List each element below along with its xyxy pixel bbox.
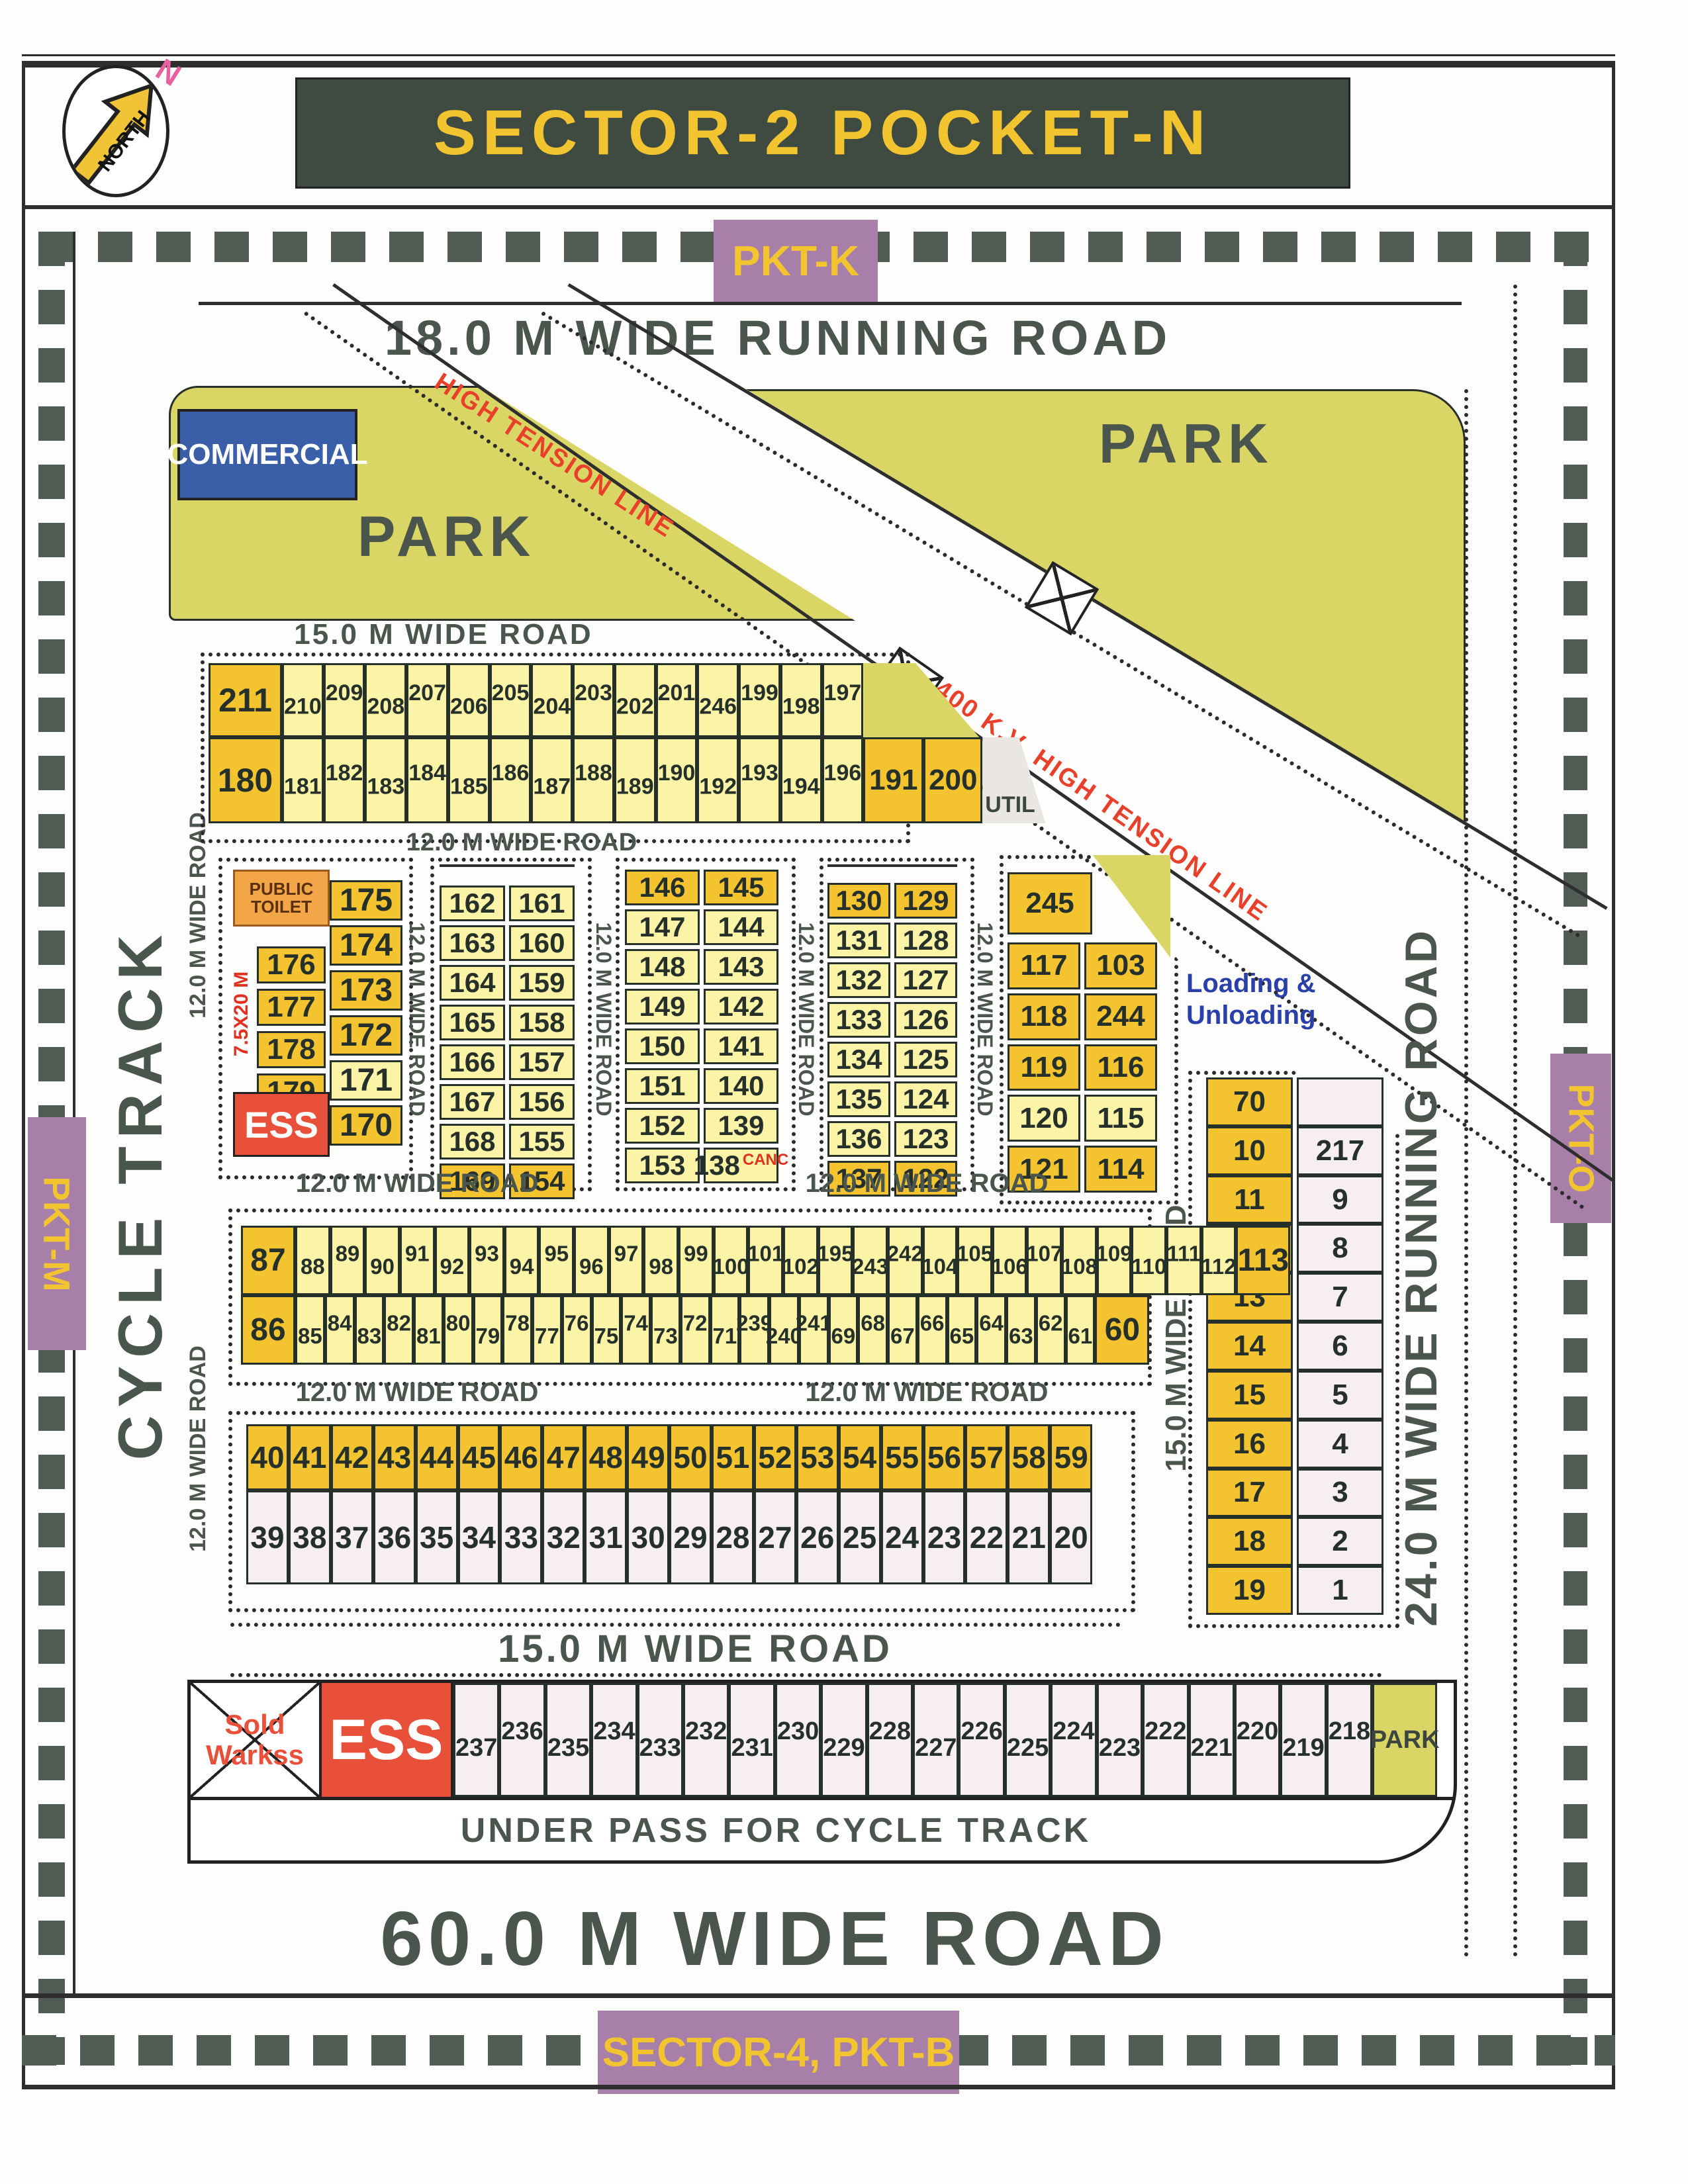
- plot-138: 138CANC: [704, 1148, 778, 1183]
- plot-92: 92: [435, 1226, 470, 1295]
- plot-103: 103: [1084, 942, 1157, 989]
- plot-82: 82: [384, 1295, 414, 1365]
- block3-cells: 1461451471441481431491421501411511401521…: [625, 870, 778, 1163]
- plot-48: 48: [585, 1424, 627, 1490]
- road15-right-label: 15.0 M WIDE ROAD: [1160, 1093, 1193, 1583]
- plot-69: 69: [829, 1295, 859, 1365]
- plot-29: 29: [669, 1490, 712, 1584]
- plot-56: 56: [923, 1424, 966, 1490]
- plot-88: 88: [295, 1226, 330, 1295]
- plot-70: 70: [1206, 1077, 1293, 1126]
- plot-130: 130: [827, 883, 890, 919]
- plot-222: 222: [1143, 1683, 1188, 1797]
- plot-209: 209: [324, 663, 365, 737]
- road18-label: 18.0 M WIDE RUNNING ROAD: [331, 310, 1225, 366]
- plot-108: 108: [1062, 1226, 1097, 1295]
- plot-111: 111: [1166, 1226, 1201, 1295]
- cycle-track-label: CYCLE TRACK: [105, 775, 176, 1612]
- plot-row-130-129: 130129: [827, 883, 957, 919]
- plot-row-152-139: 152139: [625, 1108, 778, 1144]
- plot-51: 51: [712, 1424, 754, 1490]
- plot-164: 164: [440, 965, 505, 1001]
- plot-117: 117: [1008, 942, 1080, 989]
- plot-19: 19: [1206, 1566, 1293, 1615]
- plot-245: 245: [1008, 872, 1092, 934]
- plot-8: 8: [1297, 1224, 1383, 1273]
- plot-90: 90: [365, 1226, 400, 1295]
- plot-row-146-145: 146145: [625, 870, 778, 905]
- bottom-strip: Sold Warkss ESS 237236235234233232231230…: [187, 1680, 1457, 1864]
- plot-73: 73: [651, 1295, 680, 1365]
- plot-50: 50: [669, 1424, 712, 1490]
- block4-cells: 1301291311281321271331261341251351241361…: [827, 883, 957, 1167]
- plot-146: 146: [625, 870, 700, 905]
- plot-240: 240: [769, 1295, 799, 1365]
- plot-row-134-125: 134125: [827, 1042, 957, 1077]
- plot-226: 226: [959, 1683, 1004, 1797]
- plot-211: 211: [209, 663, 282, 737]
- plot-188: 188: [573, 737, 614, 823]
- plot-45: 45: [458, 1424, 500, 1490]
- plot-224: 224: [1051, 1683, 1096, 1797]
- plot-187: 187: [531, 737, 573, 823]
- plot-129: 129: [894, 883, 957, 919]
- plot-row-168-155: 168155: [440, 1124, 575, 1160]
- plot-229: 229: [821, 1683, 867, 1797]
- plot-237: 237: [453, 1683, 499, 1797]
- plot-141: 141: [704, 1028, 778, 1064]
- block2-cells: 1621611631601641591651581661571671561681…: [440, 886, 575, 1166]
- page-title: SECTOR-2 POCKET-N: [434, 97, 1212, 169]
- road12-low-label-2: 12.0 M WIDE ROAD: [781, 1378, 1072, 1408]
- plot-233: 233: [637, 1683, 683, 1797]
- plot-98: 98: [643, 1226, 679, 1295]
- north-compass: NORTH: [62, 65, 169, 197]
- plot-85: 85: [295, 1295, 325, 1365]
- plot-205: 205: [490, 663, 532, 737]
- plot-123: 123: [894, 1121, 957, 1157]
- plot-143: 143: [704, 949, 778, 985]
- plot-34: 34: [458, 1490, 500, 1584]
- plot-54: 54: [839, 1424, 881, 1490]
- plot-168: 168: [440, 1124, 505, 1160]
- plot-118: 118: [1008, 993, 1080, 1040]
- plot-15: 15: [1206, 1371, 1293, 1420]
- plot-139: 139: [704, 1108, 778, 1144]
- plot-row-167-156: 167156: [440, 1084, 575, 1120]
- plot-189: 189: [614, 737, 656, 823]
- plot-5: 5: [1297, 1371, 1383, 1420]
- plot-row-151-140: 151140: [625, 1068, 778, 1104]
- plot-row-153-138: 153138CANC: [625, 1148, 778, 1183]
- road12-mid-label-2: 12.0 M WIDE ROAD: [781, 1169, 1072, 1199]
- label-sector4-pktb: SECTOR-4, PKT-B: [598, 2011, 959, 2094]
- road24-label: 24.0 M WIDE RUNNING ROAD: [1395, 715, 1447, 1840]
- plot-170: 170: [330, 1105, 402, 1146]
- plot-140: 140: [704, 1068, 778, 1104]
- plot-43: 43: [373, 1424, 416, 1490]
- plot-1: 1: [1297, 1566, 1383, 1615]
- plot-58: 58: [1008, 1424, 1050, 1490]
- plot-24: 24: [881, 1490, 923, 1584]
- plot-64: 64: [976, 1295, 1006, 1365]
- plot-89: 89: [330, 1226, 365, 1295]
- plot-91: 91: [400, 1226, 435, 1295]
- plot-165: 165: [440, 1005, 505, 1040]
- plot-131: 131: [827, 923, 890, 958]
- park-right-label: PARK: [1099, 412, 1274, 476]
- plot-231: 231: [729, 1683, 774, 1797]
- long-row-a: 87 8889909192939495969798991001011021952…: [241, 1226, 1136, 1295]
- plot-124: 124: [894, 1081, 957, 1117]
- plot-241: 241: [799, 1295, 829, 1365]
- plot-20: 20: [1050, 1490, 1092, 1584]
- plot-3: 3: [1297, 1469, 1383, 1518]
- plot-59: 59: [1050, 1424, 1092, 1490]
- plot-114: 114: [1084, 1146, 1157, 1193]
- plot-180: 180: [209, 737, 282, 823]
- plot-191: 191: [863, 737, 923, 823]
- plot-167: 167: [440, 1084, 505, 1120]
- road15-bottom-label: 15.0 M WIDE ROAD: [397, 1627, 993, 1671]
- plot-207: 207: [406, 663, 448, 737]
- title-divider-line: [22, 205, 1615, 209]
- plot-136: 136: [827, 1121, 890, 1157]
- block1-right-cells: 175174173172171170: [330, 880, 402, 1145]
- road12-mid-label-1: 12.0 M WIDE ROAD: [265, 1169, 569, 1199]
- plot-10: 10: [1206, 1126, 1293, 1175]
- plot-53: 53: [796, 1424, 839, 1490]
- plot-106: 106: [992, 1226, 1027, 1295]
- plot-row-163-160: 163160: [440, 925, 575, 961]
- plot-row-135-124: 135124: [827, 1081, 957, 1117]
- outer-border-left: [22, 61, 25, 2089]
- plot-206: 206: [448, 663, 490, 737]
- plot-row-150-141: 150141: [625, 1028, 778, 1064]
- plot-133: 133: [827, 1002, 890, 1038]
- park-left-label: PARK: [357, 504, 536, 570]
- block1-left-cells: 176177178179: [257, 946, 326, 1085]
- plot-row-14-6: 146: [1206, 1322, 1383, 1371]
- plot-190: 190: [656, 737, 698, 823]
- plot-183: 183: [365, 737, 406, 823]
- public-toilet-box: PUBLIC TOILET: [233, 870, 330, 927]
- plot-74: 74: [621, 1295, 651, 1365]
- forty-row-top: 4041424344454647484950515253545556575859: [246, 1424, 1092, 1490]
- plot-65: 65: [947, 1295, 977, 1365]
- plot-67: 67: [888, 1295, 917, 1365]
- plot-115: 115: [1084, 1095, 1157, 1142]
- plot-242: 242: [888, 1226, 923, 1295]
- plot-160: 160: [509, 925, 575, 961]
- plot-2: 2: [1297, 1517, 1383, 1566]
- plot-227: 227: [913, 1683, 959, 1797]
- plot-93: 93: [469, 1226, 504, 1295]
- plot-113: 113: [1236, 1226, 1290, 1295]
- sector-plot-map: SECTOR-2 POCKET-N NORTH N PKT-K PKT-M PK…: [0, 0, 1688, 2184]
- plot-row-132-127: 132127: [827, 962, 957, 998]
- plot-28: 28: [712, 1490, 754, 1584]
- plot-row-18-2: 182: [1206, 1517, 1383, 1566]
- plot-6: 6: [1297, 1322, 1383, 1371]
- road12-vertical-2: 12.0 M WIDE ROAD: [591, 875, 616, 1163]
- plot-39: 39: [246, 1490, 289, 1584]
- plot-21: 21: [1008, 1490, 1050, 1584]
- plot-225: 225: [1005, 1683, 1051, 1797]
- plot-120: 120: [1008, 1095, 1080, 1142]
- label-pkt-m: PKT-M: [28, 1117, 86, 1350]
- plot-40: 40: [246, 1424, 289, 1490]
- plot-177: 177: [257, 989, 326, 1026]
- plot-243: 243: [853, 1226, 888, 1295]
- plot-row-133-126: 133126: [827, 1002, 957, 1038]
- plot-105: 105: [957, 1226, 992, 1295]
- plot-35: 35: [416, 1490, 458, 1584]
- plot-32: 32: [542, 1490, 585, 1584]
- plot-36: 36: [373, 1490, 416, 1584]
- plot-47: 47: [542, 1424, 585, 1490]
- block4-header-line: [827, 864, 957, 867]
- plot-81: 81: [414, 1295, 444, 1365]
- plot-192: 192: [697, 737, 739, 823]
- plot-155: 155: [509, 1124, 575, 1160]
- plot-100: 100: [714, 1226, 749, 1295]
- plot-row-19-1: 191: [1206, 1566, 1383, 1615]
- plot-99: 99: [679, 1226, 714, 1295]
- plot-66: 66: [917, 1295, 947, 1365]
- outer-border-top-thin: [22, 54, 1615, 56]
- plot-193: 193: [739, 737, 780, 823]
- park-cell-bottom: PARK: [1372, 1683, 1437, 1797]
- plot-dimension-label: 7.5X20 M: [230, 942, 253, 1085]
- plot-row-147-144: 147144: [625, 909, 778, 945]
- plot-198: 198: [780, 663, 822, 737]
- label-pkt-o: PKT-O: [1550, 1054, 1611, 1223]
- commercial-label: COMMERCIAL: [167, 438, 367, 471]
- plot-83: 83: [355, 1295, 385, 1365]
- plot-77: 77: [532, 1295, 562, 1365]
- label-pkt-k: PKT-K: [714, 220, 878, 302]
- outer-border-top: [22, 61, 1615, 68]
- plot-row-16-4: 164: [1206, 1420, 1383, 1469]
- plot-110: 110: [1131, 1226, 1166, 1295]
- plot-142: 142: [704, 989, 778, 1024]
- plot-38: 38: [289, 1490, 331, 1584]
- plot-61: 61: [1066, 1295, 1096, 1365]
- plot-186: 186: [490, 737, 532, 823]
- plot-219: 219: [1280, 1683, 1326, 1797]
- plot-empty: [1297, 1077, 1383, 1126]
- plot-235: 235: [545, 1683, 591, 1797]
- plot-16: 16: [1206, 1420, 1293, 1469]
- road12-vertical-4: 12.0 M WIDE ROAD: [972, 875, 997, 1163]
- plot-row-11-9: 119: [1206, 1175, 1383, 1224]
- plot-22: 22: [965, 1490, 1008, 1584]
- plot-185: 185: [448, 737, 490, 823]
- plot-57: 57: [965, 1424, 1008, 1490]
- ess-box-bottom: ESS: [322, 1683, 453, 1797]
- plot-row-149-142: 149142: [625, 989, 778, 1024]
- plot-147: 147: [625, 909, 700, 945]
- plot-128: 128: [894, 923, 957, 958]
- plot-71: 71: [710, 1295, 740, 1365]
- plot-163: 163: [440, 925, 505, 961]
- plot-135: 135: [827, 1081, 890, 1117]
- plot-23: 23: [923, 1490, 966, 1584]
- block2-header-line: [440, 864, 575, 867]
- plot-row-15-5: 155: [1206, 1371, 1383, 1420]
- plot-126: 126: [894, 1002, 957, 1038]
- bottom-line-upper: [22, 1993, 1615, 1998]
- plot-236: 236: [499, 1683, 545, 1797]
- plot-46: 46: [500, 1424, 542, 1490]
- plot-176: 176: [257, 946, 326, 983]
- plot-196: 196: [822, 737, 864, 823]
- plot-195: 195: [818, 1226, 853, 1295]
- plot-244: 244: [1084, 993, 1157, 1040]
- plot-109: 109: [1097, 1226, 1132, 1295]
- road12-vertical-1: 12.0 M WIDE ROAD: [404, 875, 429, 1163]
- plot-246: 246: [697, 663, 739, 737]
- plot-162: 162: [440, 886, 505, 921]
- plot-row-10-217: 10217: [1206, 1126, 1383, 1175]
- plot-17: 17: [1206, 1469, 1293, 1518]
- plot-204: 204: [531, 663, 573, 737]
- underpass-strip: UNDER PASS FOR CYCLE TRACK: [191, 1800, 1454, 1860]
- right-block-cells: 7010217119128137146155164173182191: [1206, 1077, 1383, 1615]
- plot-75: 75: [592, 1295, 622, 1365]
- plot-132: 132: [827, 962, 890, 998]
- plot-101: 101: [748, 1226, 783, 1295]
- bottom-line-lower: [22, 2085, 1615, 2089]
- plot-217: 217: [1297, 1126, 1383, 1175]
- plot-134: 134: [827, 1042, 890, 1077]
- plot-151: 151: [625, 1068, 700, 1104]
- plot-181: 181: [282, 737, 324, 823]
- long-row-b: 86 8584838281807978777675747372712392402…: [241, 1295, 1136, 1365]
- plot-63: 63: [1006, 1295, 1036, 1365]
- road15-bottom-dotted-bottom: [230, 1673, 1382, 1677]
- plot-156: 156: [509, 1084, 575, 1120]
- road12-top-label: 12.0 M WIDE ROAD: [389, 829, 654, 857]
- plot-239: 239: [739, 1295, 769, 1365]
- plot-14: 14: [1206, 1322, 1293, 1371]
- plot-row-131-128: 131128: [827, 923, 957, 958]
- plot-230: 230: [775, 1683, 821, 1797]
- plot-41: 41: [289, 1424, 331, 1490]
- plot-60: 60: [1095, 1295, 1149, 1365]
- plot-row-120-115: 120115: [1008, 1095, 1157, 1142]
- plot-197: 197: [822, 663, 864, 737]
- plot-42: 42: [331, 1424, 373, 1490]
- plot-127: 127: [894, 962, 957, 998]
- plot-9: 9: [1297, 1175, 1383, 1224]
- plot-223: 223: [1097, 1683, 1143, 1797]
- plot-row-136-123: 136123: [827, 1121, 957, 1157]
- plot-172: 172: [330, 1015, 402, 1056]
- plot-234: 234: [591, 1683, 637, 1797]
- plot-row-117-103: 117103: [1008, 942, 1157, 989]
- plot-26: 26: [796, 1490, 839, 1584]
- plot-184: 184: [406, 737, 448, 823]
- plot-152: 152: [625, 1108, 700, 1144]
- plot-80: 80: [444, 1295, 473, 1365]
- road24-dotted-left: [1464, 389, 1468, 1958]
- plot-201: 201: [656, 663, 698, 737]
- plot-102: 102: [783, 1226, 818, 1295]
- plot-row-162-161: 162161: [440, 886, 575, 921]
- plot-55: 55: [881, 1424, 923, 1490]
- plot-200: 200: [923, 737, 982, 823]
- plot-208: 208: [365, 663, 406, 737]
- plot-18: 18: [1206, 1517, 1293, 1566]
- plot-203: 203: [573, 663, 614, 737]
- plot-119: 119: [1008, 1044, 1080, 1091]
- top-block-row2: 180 181182183184185186187188189190192193…: [209, 737, 959, 823]
- plot-228: 228: [867, 1683, 913, 1797]
- plot-232: 232: [683, 1683, 729, 1797]
- plot-4: 4: [1297, 1420, 1383, 1469]
- plot-96: 96: [574, 1226, 609, 1295]
- plot-145: 145: [704, 870, 778, 905]
- plot-125: 125: [894, 1042, 957, 1077]
- sold-warkss-box: Sold Warkss: [191, 1683, 322, 1797]
- plot-116: 116: [1084, 1044, 1157, 1091]
- inner-left-line: [73, 232, 75, 1993]
- title-banner: SECTOR-2 POCKET-N: [295, 77, 1350, 189]
- block5-cells: 117103118244119116120115121114: [1008, 942, 1157, 1193]
- plot-row-119-116: 119116: [1008, 1044, 1157, 1091]
- plot-7: 7: [1297, 1273, 1383, 1322]
- plot-11: 11: [1206, 1175, 1293, 1224]
- road15-top-label: 15.0 M WIDE ROAD: [271, 618, 616, 651]
- plot-158: 158: [509, 1005, 575, 1040]
- plot-144: 144: [704, 909, 778, 945]
- plot-199: 199: [739, 663, 780, 737]
- plot-62: 62: [1036, 1295, 1066, 1365]
- plot-171: 171: [330, 1060, 402, 1101]
- bottom-plots: 2372362352342332322312302292282272262252…: [453, 1683, 1372, 1797]
- plot-84: 84: [325, 1295, 355, 1365]
- plot-68: 68: [858, 1295, 888, 1365]
- road12-low-label-1: 12.0 M WIDE ROAD: [265, 1378, 569, 1408]
- plot-94: 94: [504, 1226, 539, 1295]
- plot-87: 87: [241, 1226, 295, 1295]
- plot-52: 52: [754, 1424, 796, 1490]
- road12-left-label-lower: 12.0 M WIDE ROAD: [185, 1300, 211, 1598]
- plot-153: 153: [625, 1148, 700, 1183]
- plot-97: 97: [609, 1226, 644, 1295]
- plot-148: 148: [625, 949, 700, 985]
- plot-row-165-158: 165158: [440, 1005, 575, 1040]
- plot-86: 86: [241, 1295, 295, 1365]
- plot-174: 174: [330, 925, 402, 966]
- plot-row-118-244: 118244: [1008, 993, 1157, 1040]
- plot-72: 72: [680, 1295, 710, 1365]
- plot-104: 104: [923, 1226, 958, 1295]
- plot-79: 79: [473, 1295, 503, 1365]
- plot-33: 33: [500, 1490, 542, 1584]
- plot-194: 194: [780, 737, 822, 823]
- plot-173: 173: [330, 970, 402, 1011]
- plot-30: 30: [627, 1490, 669, 1584]
- plot-row-148-143: 148143: [625, 949, 778, 985]
- plot-37: 37: [331, 1490, 373, 1584]
- plot-166: 166: [440, 1044, 505, 1080]
- plot-27: 27: [754, 1490, 796, 1584]
- road24-dotted-right: [1513, 285, 1517, 1958]
- ess-box-block1: ESS: [233, 1092, 330, 1157]
